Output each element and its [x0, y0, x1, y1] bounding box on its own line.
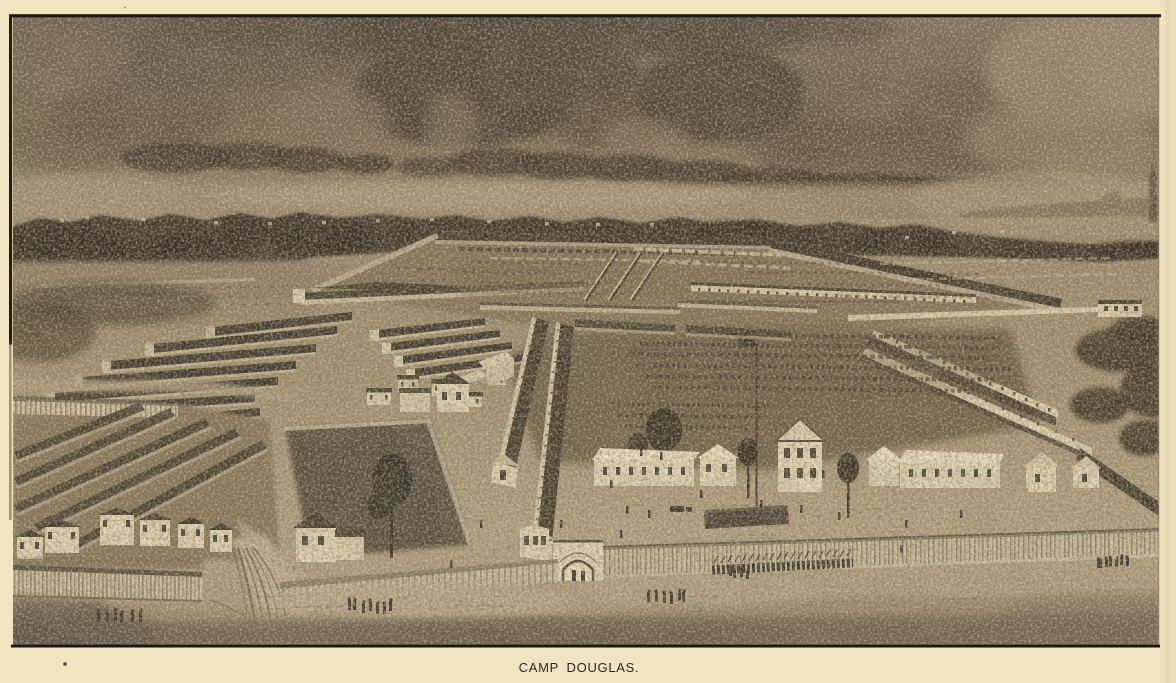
svg-text:CAMP DOUGLAS.: CAMP DOUGLAS.: [519, 660, 640, 675]
